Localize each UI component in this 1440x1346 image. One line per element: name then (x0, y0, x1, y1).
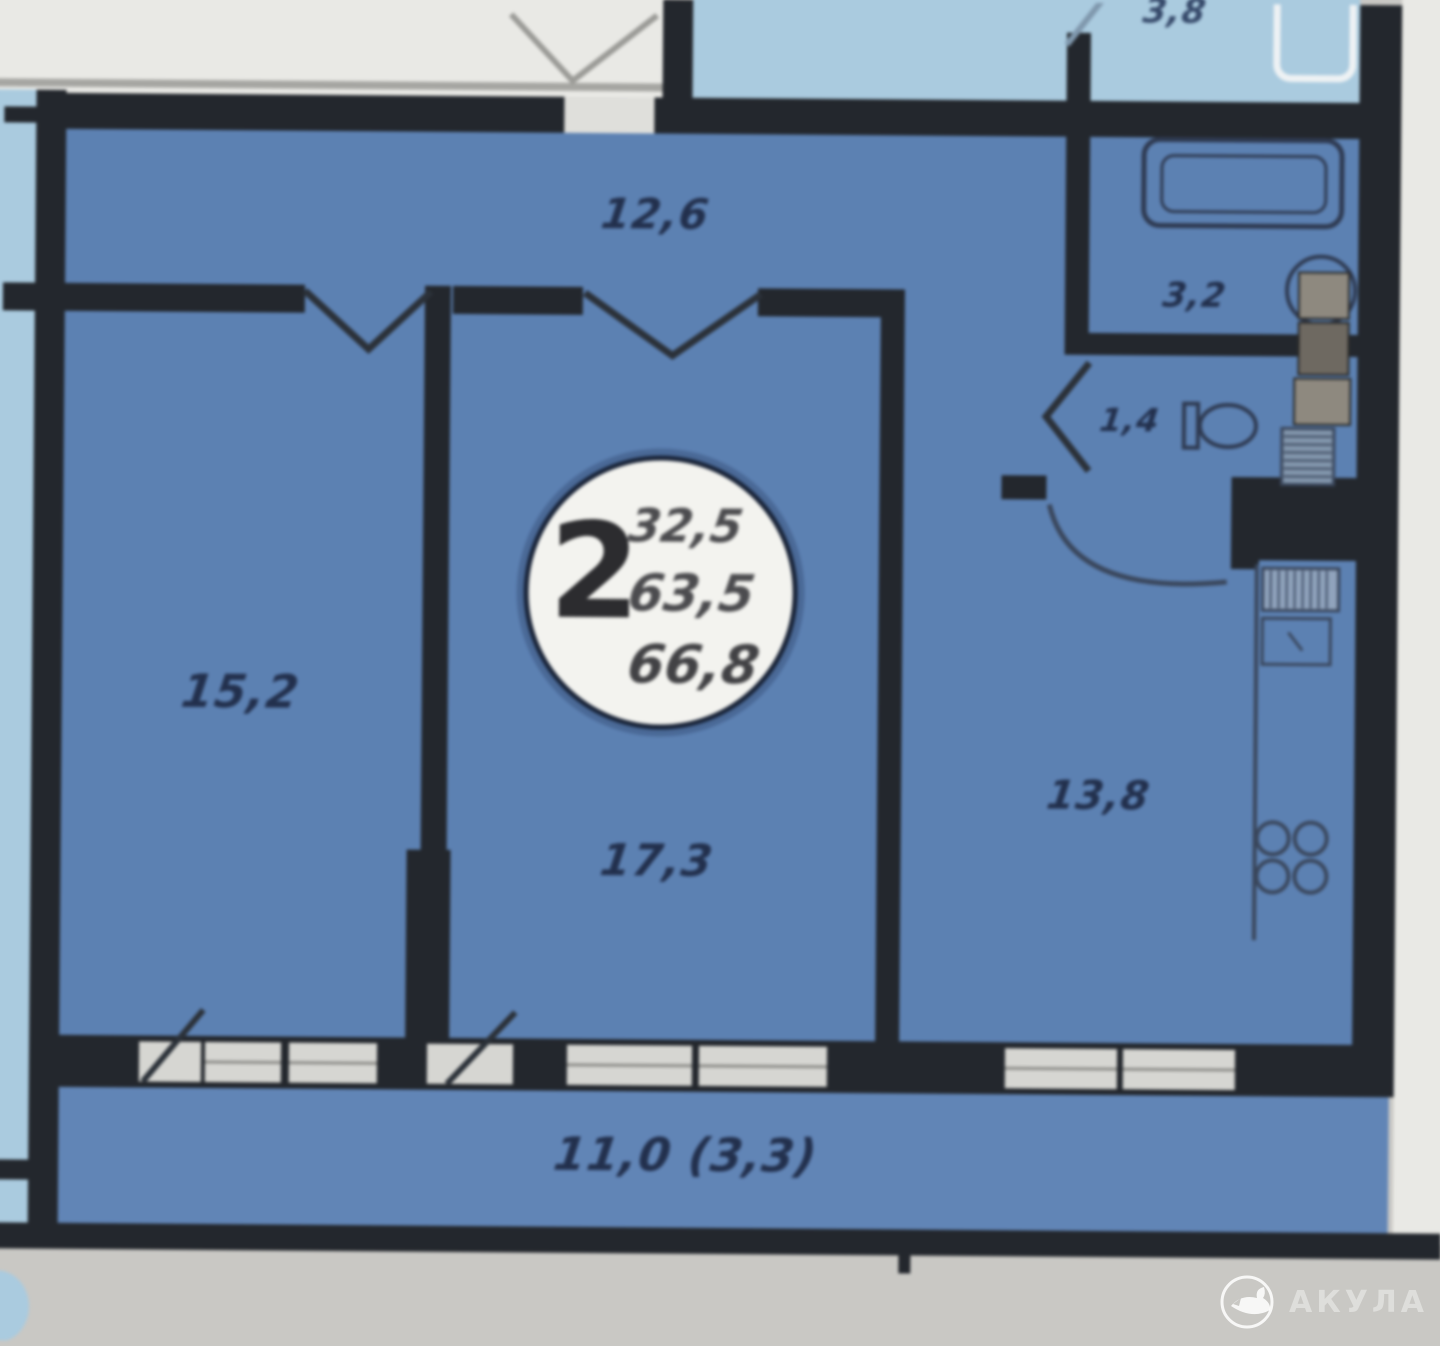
entrance-door-swing (511, 14, 658, 81)
neighbor-door-swing (1067, 0, 1103, 45)
area-badge: 2 32,5 63,5 66,8 (523, 454, 799, 730)
floorplan-photo: 12,6 15,2 17,3 13,8 3,2 1,4 11,0 (3,3) 3… (0, 0, 1440, 1346)
toilet-icon (1184, 404, 1256, 449)
stove-icon (1256, 822, 1327, 893)
room-label-neighbor: 3,8 (1141, 0, 1209, 32)
door-swing (304, 291, 1090, 471)
badge-total-area: 66,8 (624, 638, 784, 692)
badge-usable-area: 63,5 (625, 568, 785, 620)
bathtub-icon (1144, 139, 1343, 227)
floorplan-image: 12,6 15,2 17,3 13,8 3,2 1,4 11,0 (3,3) 3… (0, 0, 1440, 1346)
page-artifact (0, 1270, 29, 1343)
vent-shaft-hatched (1281, 428, 1333, 484)
utility-shafts (1294, 273, 1351, 425)
badge-living-area: 32,5 (626, 502, 785, 549)
room-label-hall: 12,6 (598, 189, 712, 239)
window-frame-lines (205, 1062, 1235, 1070)
watermark: АКУЛА (1219, 1274, 1428, 1330)
vent-shaft (1263, 568, 1339, 611)
room-label-bathroom: 3,2 (1160, 275, 1228, 315)
room-label-wc: 1,4 (1098, 401, 1163, 439)
kitchen-sink-icon (1262, 618, 1330, 665)
kitchen-door-arc (1049, 505, 1228, 585)
room-label-kitchen: 13,8 (1044, 773, 1153, 820)
neighbor-bathtub-icon (1277, 0, 1354, 79)
balcony-door-swing (143, 1009, 516, 1084)
shark-logo-icon (1219, 1274, 1275, 1330)
room-label-bedroom: 15,2 (178, 664, 303, 719)
room-label-balcony: 11,0 (3,3) (551, 1127, 821, 1183)
watermark-text: АКУЛА (1289, 1285, 1428, 1320)
room-label-living: 17,3 (597, 835, 716, 887)
